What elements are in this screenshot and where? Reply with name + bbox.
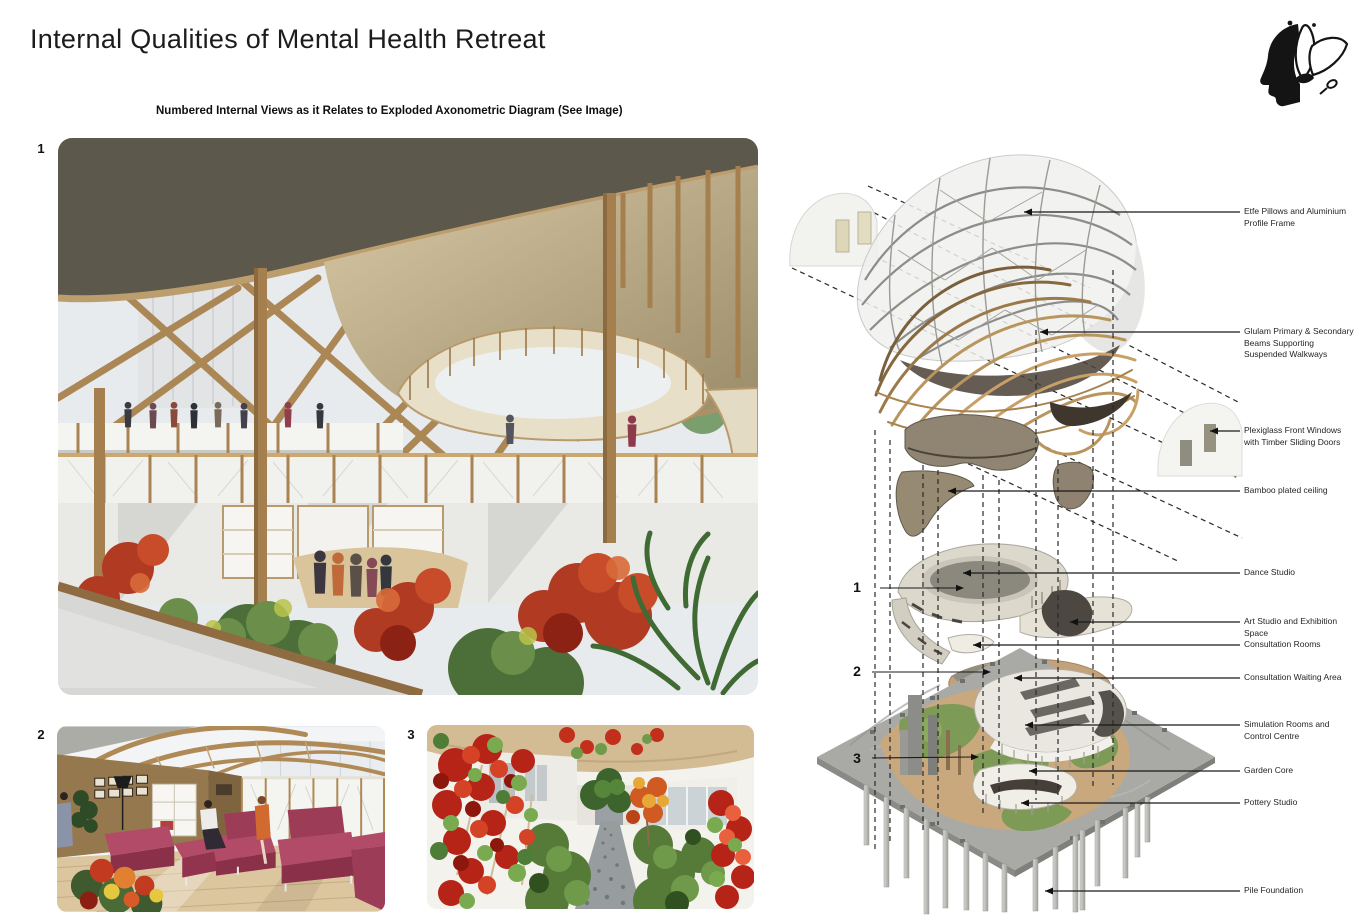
- head-flower-logo-icon: [1256, 18, 1356, 110]
- callout-glulam-beams: Glulam Primary & Secondary Beams Support…: [1244, 326, 1358, 361]
- callout-dance-studio: Dance Studio: [1244, 567, 1358, 579]
- view-2-number: 2: [32, 727, 50, 742]
- diagram-number-3: 3: [848, 750, 866, 766]
- views-subtitle: Numbered Internal Views as it Relates to…: [156, 105, 623, 117]
- diagram-number-2: 2: [848, 663, 866, 679]
- presentation-board: Internal Qualities of Mental Health Retr…: [0, 0, 1366, 922]
- callout-etfe-pillows: Etfe Pillows and Aluminium Profile Frame: [1244, 206, 1358, 229]
- interior-render-1: [58, 138, 758, 695]
- diagram-number-1: 1: [848, 579, 866, 595]
- callout-garden-core: Garden Core: [1244, 765, 1358, 777]
- exploded-axonometric-diagram: [780, 130, 1250, 920]
- page-title: Internal Qualities of Mental Health Retr…: [30, 24, 546, 55]
- dance-studio-level: [892, 544, 1132, 664]
- callout-consultation-rooms: Consultation Rooms: [1244, 639, 1358, 651]
- view-3-number: 3: [402, 727, 420, 742]
- callout-pile-foundation: Pile Foundation: [1244, 885, 1358, 897]
- bamboo-ceiling-plates: [896, 415, 1093, 536]
- lounge-seating-illustration: [57, 726, 385, 912]
- callout-simulation-rooms: Simulation Rooms and Control Centre: [1244, 719, 1358, 742]
- base-slab: [817, 648, 1215, 877]
- garden-path-illustration: [427, 725, 754, 909]
- callout-art-studio: Art Studio and Exhibition Space: [1244, 616, 1358, 639]
- callout-consultation-waiting: Consultation Waiting Area: [1244, 672, 1358, 684]
- interior-render-3: [427, 725, 754, 909]
- atrium-walkway-illustration: [58, 138, 758, 695]
- callout-plexiglass-windows: Plexiglass Front Windows with Timber Sli…: [1244, 425, 1358, 448]
- callout-bamboo-ceiling: Bamboo plated ceiling: [1244, 485, 1358, 497]
- callout-pottery-studio: Pottery Studio: [1244, 797, 1358, 809]
- view-1-number: 1: [32, 141, 50, 156]
- interior-render-2: [57, 726, 385, 912]
